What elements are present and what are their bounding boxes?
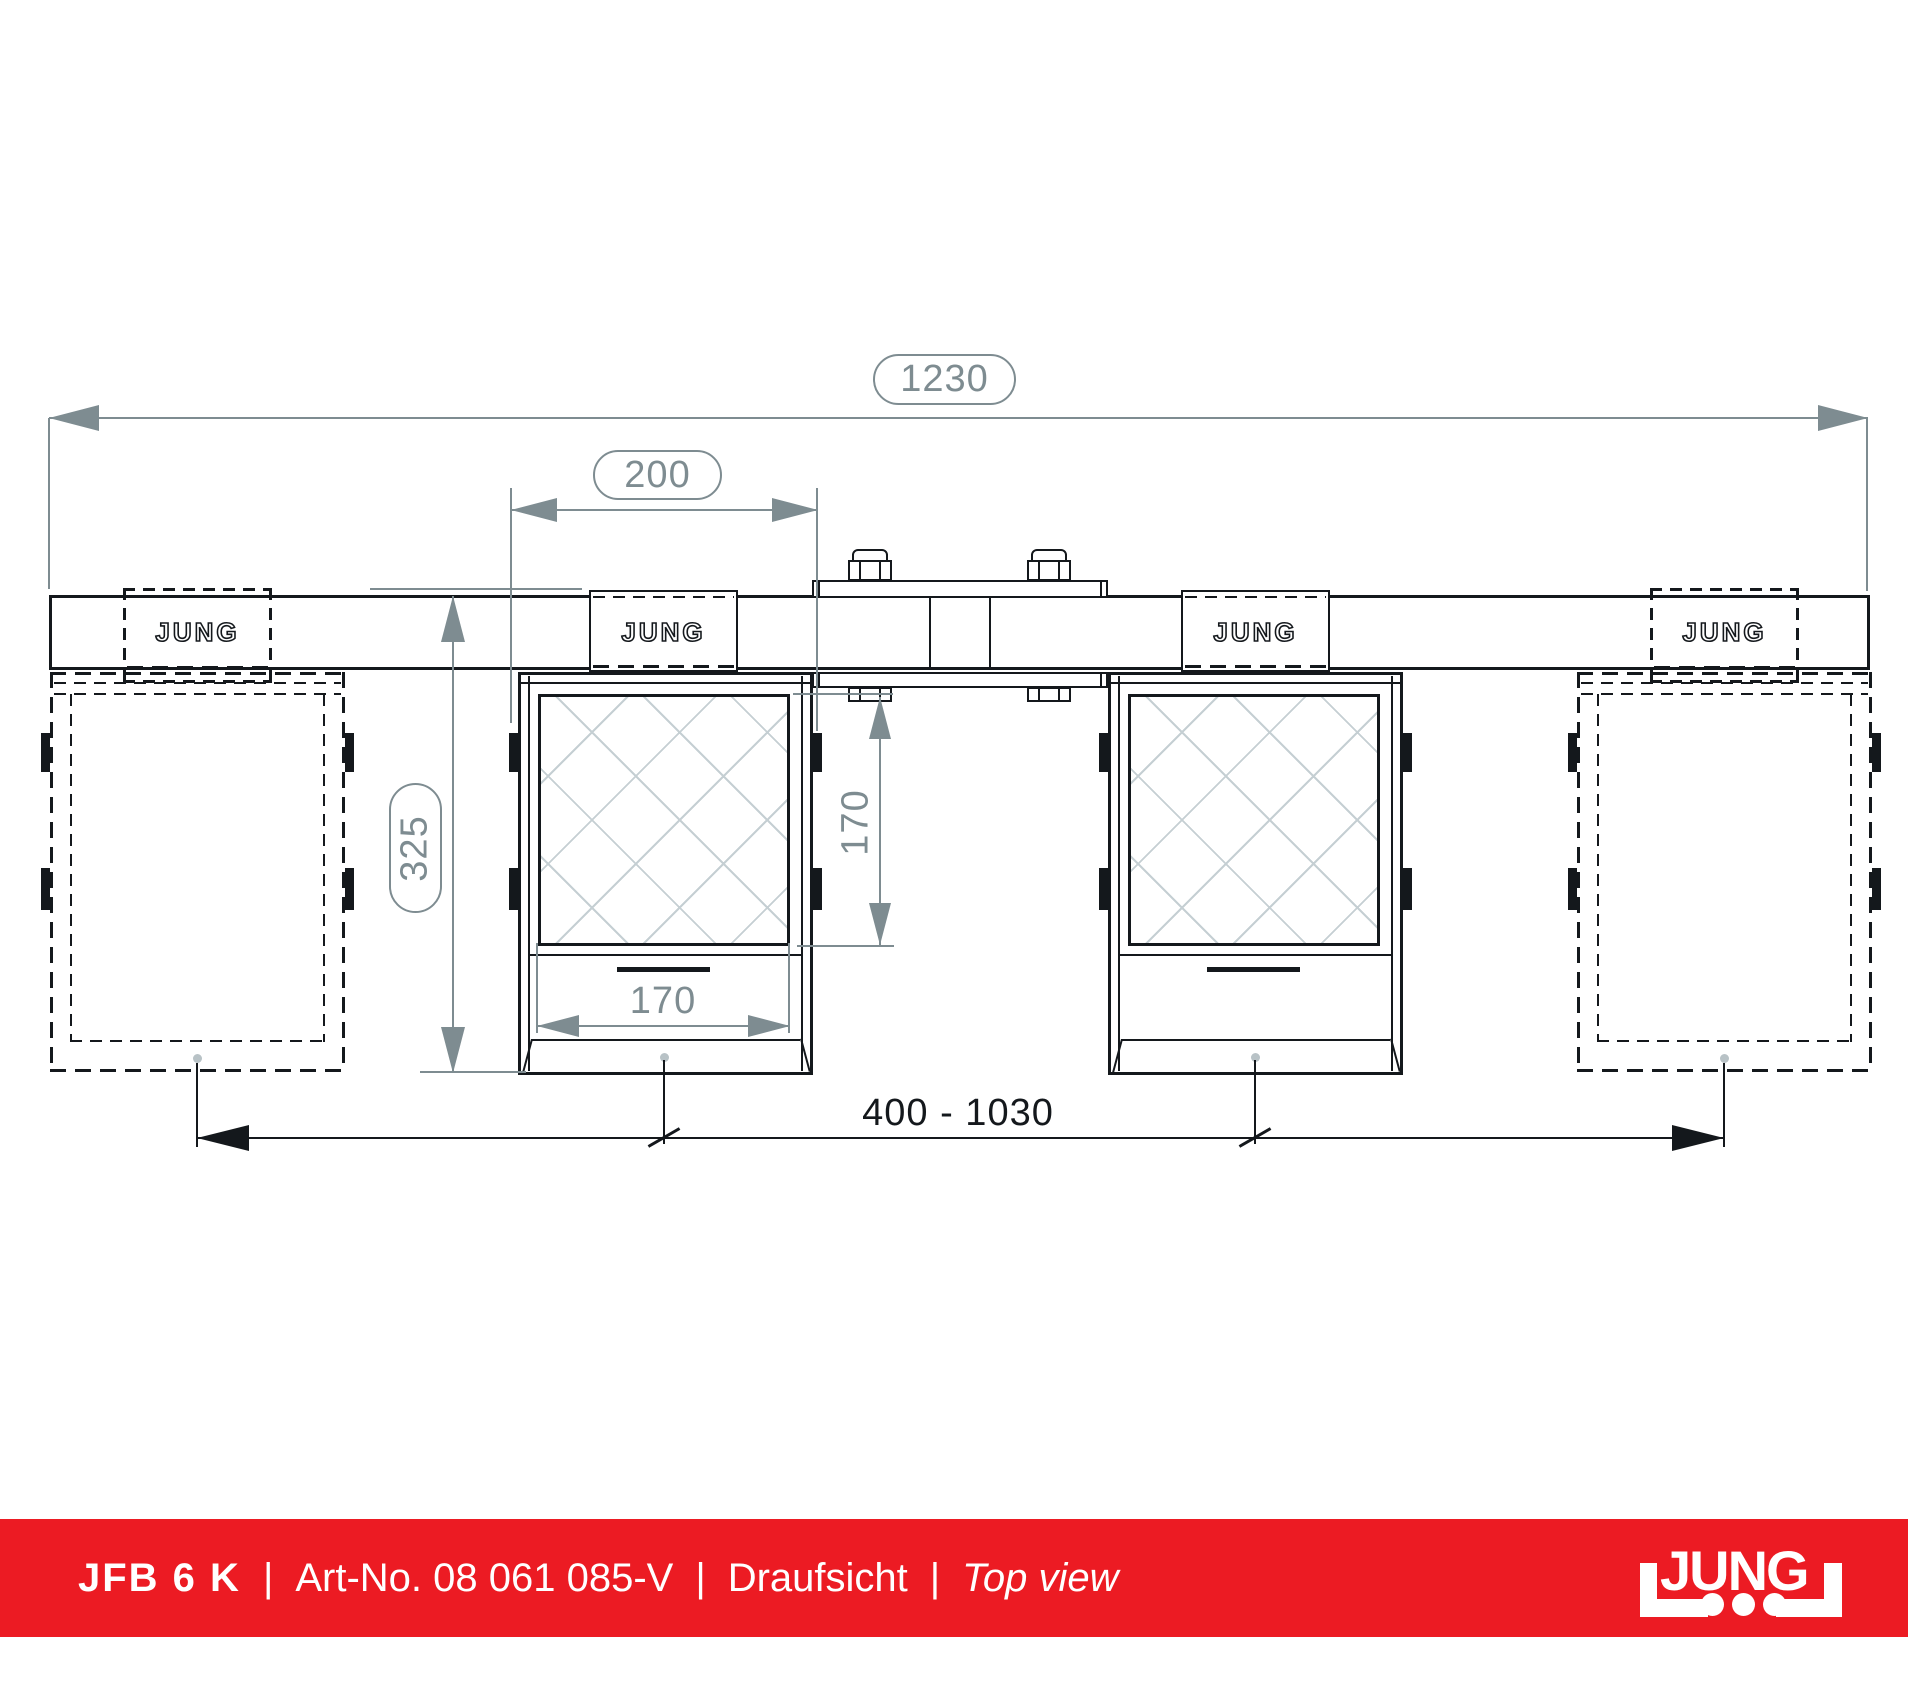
bolt-hex-head bbox=[1027, 560, 1071, 581]
pocket-outline-dashed bbox=[1577, 672, 1580, 1072]
beam-joint-line bbox=[989, 598, 991, 668]
pocket-wall-line bbox=[801, 676, 803, 1071]
top-clamp-plate bbox=[812, 580, 1108, 598]
dim-pad-width-pill: 200 bbox=[593, 450, 722, 500]
plate-end-line bbox=[818, 582, 820, 596]
pocket-wall-line bbox=[1391, 676, 1393, 1071]
dim-arrow-down bbox=[869, 903, 891, 945]
dim-extension-line bbox=[48, 418, 50, 589]
pad-edge-dashed bbox=[127, 666, 268, 669]
footer-art-no: Art-No. 08 061 085-V bbox=[295, 1556, 673, 1601]
fork-slot-line bbox=[617, 967, 710, 972]
dim-extension-line bbox=[793, 693, 893, 695]
dim-pocket-width-value: 170 bbox=[630, 980, 696, 1023]
pocket-lock-tab bbox=[345, 733, 354, 772]
pad-brand-label: JUNG bbox=[1650, 617, 1799, 647]
bolt-nut-bottom bbox=[1027, 687, 1071, 702]
pad-edge-dashed bbox=[1185, 596, 1326, 598]
pocket-lock-tab bbox=[1403, 733, 1412, 772]
dim-range-tick-line bbox=[663, 1060, 665, 1144]
bolt-hex-head bbox=[848, 560, 892, 581]
pocket-bottom-line bbox=[1121, 1039, 1390, 1041]
jung-logo-left-bracket bbox=[1640, 1599, 1708, 1617]
jung-logo-dot bbox=[1701, 1593, 1724, 1616]
footer-view-en: Top view bbox=[962, 1556, 1118, 1601]
dim-arrow-right bbox=[772, 498, 818, 522]
dim-overall-line bbox=[49, 417, 1868, 419]
dim-arrow-left bbox=[511, 498, 557, 522]
pocket-lock-tab bbox=[41, 868, 50, 910]
pad-outline-dashed bbox=[123, 680, 272, 683]
dim-arrow-left bbox=[197, 1125, 249, 1151]
pad-edge-dashed bbox=[593, 665, 734, 668]
jung-logo-right-bracket bbox=[1776, 1599, 1842, 1617]
dim-pocket-width-label: 170 bbox=[613, 982, 713, 1020]
pocket-hatch-area bbox=[538, 694, 790, 946]
dim-range-tick-line bbox=[1254, 1060, 1256, 1144]
dim-pocket-depth-value: 170 bbox=[835, 789, 878, 855]
pocket-lock-tab bbox=[41, 733, 50, 772]
plate-end-line bbox=[1100, 674, 1102, 686]
dim-extension-line bbox=[797, 945, 894, 947]
pocket-lock-tab bbox=[1568, 733, 1577, 772]
pocket-lock-tab bbox=[1872, 733, 1881, 772]
footer-text-row: JFB 6 K | Art-No. 08 061 085-V | Draufsi… bbox=[78, 1556, 1119, 1601]
footer-separator: | bbox=[695, 1556, 705, 1601]
footer-model: JFB 6 K bbox=[78, 1556, 241, 1601]
pocket-bottom-line-dashed bbox=[1597, 1040, 1852, 1042]
pocket-top-line bbox=[521, 682, 810, 684]
pocket-top-line bbox=[1111, 682, 1400, 684]
pocket-inner-line-dashed bbox=[1581, 693, 1868, 695]
dim-arrow-left bbox=[49, 405, 99, 431]
pocket-inner-line-dashed bbox=[1850, 694, 1852, 1042]
dim-total-depth-value: 325 bbox=[394, 815, 437, 881]
footer-separator: | bbox=[263, 1556, 273, 1601]
pocket-inner-line-dashed bbox=[323, 694, 325, 1042]
dim-range-label: 400 - 1030 bbox=[833, 1092, 1083, 1134]
pad-brand-text: JUNG bbox=[1213, 617, 1297, 648]
technical-drawing-sheet: JUNG JUNG JUNG JUNG 1230 200 325 170 bbox=[0, 0, 1920, 1705]
pocket-wall-line bbox=[1118, 676, 1120, 1071]
footer-separator: | bbox=[930, 1556, 940, 1601]
bolt-facet-line bbox=[1058, 562, 1060, 579]
dim-arrow-right bbox=[1672, 1125, 1724, 1151]
pocket-lock-tab bbox=[345, 868, 354, 910]
bolt-facet-line bbox=[1058, 689, 1060, 700]
pad-brand-text: JUNG bbox=[621, 617, 705, 648]
dim-extension-line bbox=[510, 488, 512, 723]
dim-extension-line bbox=[536, 943, 538, 1033]
jung-logo-dot bbox=[1763, 1593, 1786, 1616]
pad-edge-dashed bbox=[1185, 665, 1326, 668]
bolt-facet-line bbox=[859, 562, 861, 579]
pocket-lock-tab bbox=[509, 868, 518, 910]
pocket-outline-dashed bbox=[50, 672, 345, 675]
dim-arrow-right bbox=[748, 1015, 790, 1037]
bolt-facet-line bbox=[1038, 689, 1040, 700]
footer-bar: JFB 6 K | Art-No. 08 061 085-V | Draufsi… bbox=[0, 1519, 1908, 1637]
fork-slot-line bbox=[1207, 967, 1300, 972]
pocket-lock-tab bbox=[813, 733, 822, 772]
pad-brand-label: JUNG bbox=[123, 617, 272, 647]
pocket-hatch-area bbox=[1128, 694, 1380, 946]
jung-logo: JUNG bbox=[1640, 1548, 1842, 1618]
pocket-inner-line-dashed bbox=[54, 693, 341, 695]
pocket-lock-tab bbox=[1403, 868, 1412, 910]
dim-arrow-up bbox=[441, 596, 465, 642]
beam-joint-line bbox=[929, 598, 931, 668]
pocket-bottom-line bbox=[531, 1039, 800, 1041]
pocket-outline-dashed bbox=[50, 672, 53, 1072]
pocket-inner-line-dashed bbox=[70, 694, 72, 1042]
pocket-lock-tab bbox=[1872, 868, 1881, 910]
pad-edge-dashed bbox=[593, 596, 734, 598]
dim-extension-line bbox=[788, 943, 790, 1033]
pad-brand-label: JUNG bbox=[589, 617, 738, 647]
jung-logo-dot bbox=[1732, 1593, 1755, 1616]
pocket-bottom-line-dashed bbox=[70, 1040, 325, 1042]
dim-arrow-up bbox=[869, 697, 891, 739]
bolt-facet-line bbox=[879, 562, 881, 579]
pocket-outline-dashed bbox=[1577, 672, 1872, 675]
center-mark bbox=[193, 1054, 202, 1063]
pocket-lock-tab bbox=[1099, 868, 1108, 910]
pocket-inner-line-dashed bbox=[1597, 694, 1599, 1042]
jung-logo-wordmark: JUNG bbox=[1660, 1538, 1808, 1603]
center-mark bbox=[1720, 1054, 1729, 1063]
dim-extension-line bbox=[420, 1071, 526, 1073]
pad-brand-text: JUNG bbox=[1682, 617, 1766, 648]
dim-extension-line bbox=[1866, 418, 1868, 591]
pad-outline-dashed bbox=[1650, 588, 1799, 591]
pocket-mid-line bbox=[528, 954, 803, 956]
bottom-clamp-plate bbox=[812, 672, 1108, 688]
dim-overall-width-value: 1230 bbox=[900, 358, 989, 401]
bolt-facet-line bbox=[1038, 562, 1040, 579]
pocket-lock-tab bbox=[509, 733, 518, 772]
pocket-wall-line bbox=[528, 676, 530, 1071]
dim-range-value: 400 - 1030 bbox=[862, 1092, 1054, 1135]
dim-arrow-down bbox=[441, 1027, 465, 1073]
plate-end-line bbox=[818, 674, 820, 686]
pocket-lock-tab bbox=[1568, 868, 1577, 910]
dim-pocket-depth-label: 170 bbox=[828, 770, 884, 874]
dim-arrow-right bbox=[1818, 405, 1868, 431]
pocket-lock-tab bbox=[1099, 733, 1108, 772]
footer-view-de: Draufsicht bbox=[728, 1556, 908, 1601]
pad-brand-label: JUNG bbox=[1181, 617, 1330, 647]
dim-depth-line bbox=[452, 596, 454, 1073]
plate-end-line bbox=[1100, 582, 1102, 596]
dim-pad-width-value: 200 bbox=[624, 454, 690, 497]
pocket-mid-line bbox=[1118, 954, 1393, 956]
dim-total-depth-pill: 325 bbox=[389, 783, 442, 913]
pad-edge-dashed bbox=[1654, 666, 1795, 669]
pocket-lock-tab bbox=[813, 868, 822, 910]
pad-outline-dashed bbox=[1650, 680, 1799, 683]
pad-outline-dashed bbox=[123, 588, 272, 591]
dim-range-line bbox=[197, 1137, 1724, 1139]
dim-overall-width-pill: 1230 bbox=[873, 354, 1016, 405]
dim-arrow-left bbox=[537, 1015, 579, 1037]
dim-extension-line bbox=[370, 588, 582, 590]
crossbeam bbox=[49, 595, 1870, 670]
pad-brand-text: JUNG bbox=[155, 617, 239, 648]
